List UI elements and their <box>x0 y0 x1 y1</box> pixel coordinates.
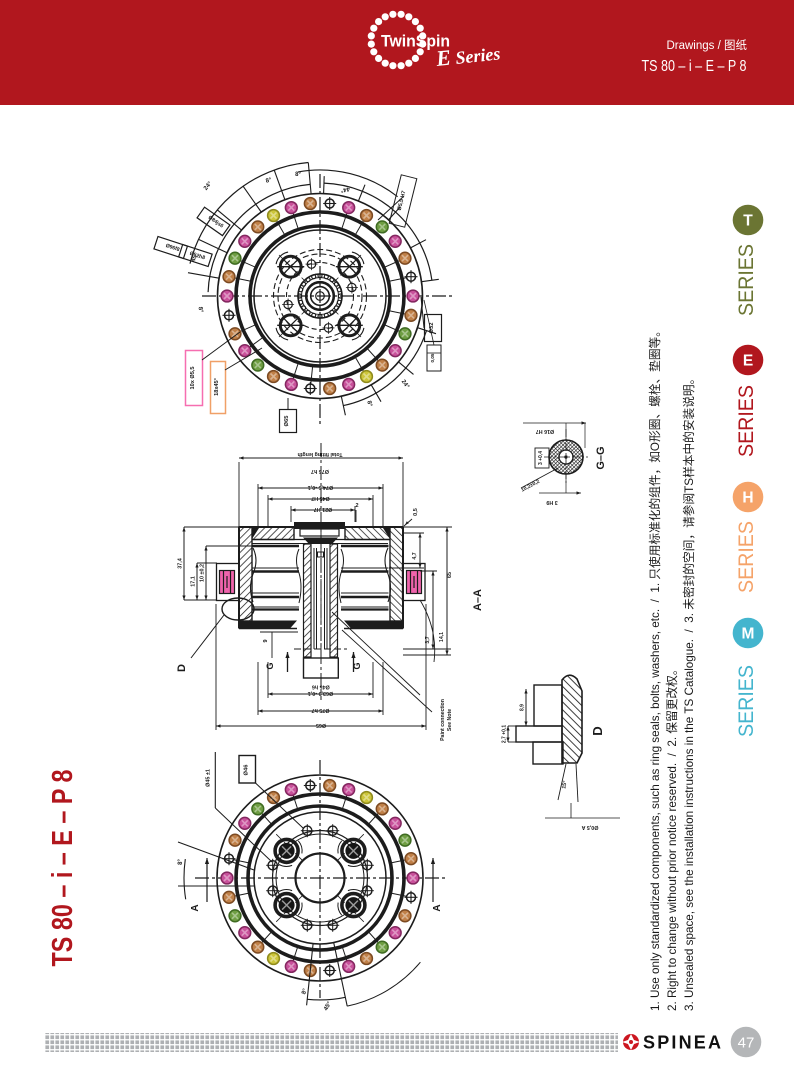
svg-text:E: E <box>743 353 753 370</box>
svg-text:1. Use only standardized compo: 1. Use only standardized components, suc… <box>648 325 662 1011</box>
svg-text:Ø21 H7: Ø21 H7 <box>314 506 333 512</box>
svg-text:Ø45 ±1: Ø45 ±1 <box>206 769 212 787</box>
svg-text:10 ±0,2: 10 ±0,2 <box>200 564 206 582</box>
svg-text:SPINEA: SPINEA <box>643 1033 723 1053</box>
svg-text:Ø74,5 -0,1: Ø74,5 -0,1 <box>308 484 333 490</box>
svg-text:See Note: See Note <box>447 709 453 731</box>
svg-text:SERIES: SERIES <box>735 244 758 316</box>
svg-text:A: A <box>432 904 443 911</box>
svg-text:Drawings / 图纸: Drawings / 图纸 <box>666 39 747 52</box>
svg-text:Paint connection: Paint connection <box>440 699 446 741</box>
svg-text:G–G: G–G <box>595 446 607 469</box>
svg-text:37,4: 37,4 <box>178 558 184 569</box>
svg-text:G: G <box>265 662 275 669</box>
svg-text:Ø65: Ø65 <box>284 415 290 427</box>
svg-text:14,1: 14,1 <box>439 632 445 642</box>
svg-text:0,05: 0,05 <box>430 353 435 362</box>
svg-text:D: D <box>176 664 188 672</box>
svg-text:Ø46: Ø46 <box>244 764 250 776</box>
svg-text:A–A: A–A <box>472 589 484 611</box>
svg-text:8°: 8° <box>178 859 184 865</box>
svg-text:65: 65 <box>447 572 453 578</box>
svg-text:8°: 8° <box>295 172 301 178</box>
svg-text:SERIES: SERIES <box>735 385 758 457</box>
svg-text:H: H <box>742 490 753 507</box>
svg-text:10x Ø5,5: 10x Ø5,5 <box>190 366 196 389</box>
svg-text:D: D <box>590 726 605 735</box>
svg-text:2. Right to change without pri: 2. Right to change without prior notice … <box>665 663 679 1011</box>
svg-text:3. Unsealed space, see the ins: 3. Unsealed space, see the installation … <box>682 373 696 1011</box>
svg-text:2: 2 <box>355 503 358 509</box>
svg-text:TS 80 – i – E – P 8: TS 80 – i – E – P 8 <box>642 58 747 75</box>
svg-text:0,5: 0,5 <box>413 508 419 516</box>
svg-text:Ø0,5 A: Ø0,5 A <box>581 824 598 830</box>
svg-text:Total fitting length: Total fitting length <box>298 451 343 457</box>
svg-text:17,1: 17,1 <box>191 576 197 587</box>
svg-text:3 H9: 3 H9 <box>546 499 557 505</box>
svg-text:A: A <box>190 904 201 911</box>
svg-text:3,7: 3,7 <box>425 636 431 643</box>
svg-text:Ø45 H7: Ø45 H7 <box>311 495 330 501</box>
svg-text:SERIES: SERIES <box>735 521 758 593</box>
svg-text:TS 80 – i – E – P 8: TS 80 – i – E – P 8 <box>47 770 79 967</box>
svg-text:8,9: 8,9 <box>520 704 526 711</box>
svg-text:9: 9 <box>263 639 269 642</box>
svg-text:Ø75 h7: Ø75 h7 <box>311 468 329 474</box>
svg-text:Ø45 h6: Ø45 h6 <box>312 684 330 690</box>
svg-text:47: 47 <box>738 1035 755 1052</box>
svg-text:M: M <box>742 626 755 643</box>
svg-text:3 +0,4: 3 +0,4 <box>538 451 544 465</box>
svg-text:18x45°: 18x45° <box>214 378 220 396</box>
svg-text:2,7 +0,1: 2,7 +0,1 <box>502 725 508 743</box>
svg-text:Ø63,9 -0,1: Ø63,9 -0,1 <box>308 690 333 696</box>
svg-text:Ø75 h7: Ø75 h7 <box>312 707 330 713</box>
svg-text:Ø65: Ø65 <box>316 722 326 728</box>
svg-text:Ø16 H7: Ø16 H7 <box>536 428 555 434</box>
svg-text:T: T <box>743 213 753 230</box>
svg-text:G: G <box>352 662 362 669</box>
svg-text:SERIES: SERIES <box>735 665 758 737</box>
svg-text:4,7: 4,7 <box>412 552 418 559</box>
